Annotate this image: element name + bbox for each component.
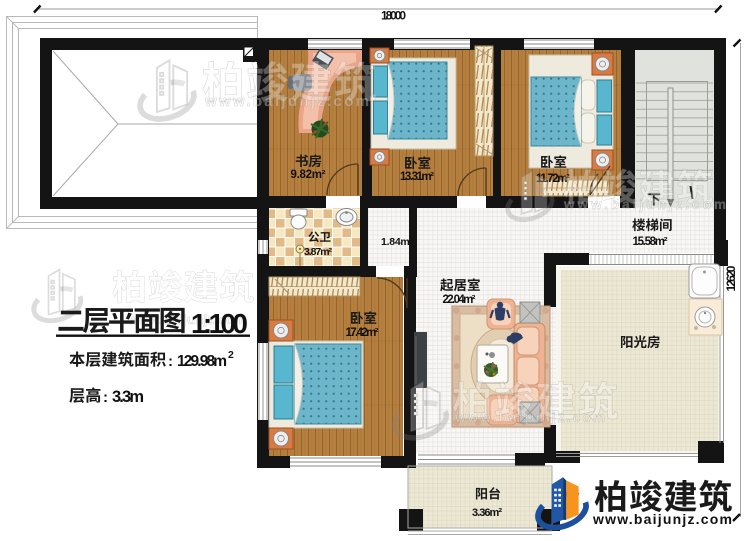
svg-text:3.3m: 3.3m — [112, 388, 144, 406]
svg-text:3.36m²: 3.36m² — [472, 507, 502, 519]
svg-text:1:100: 1:100 — [191, 308, 248, 339]
svg-text:129.98m: 129.98m — [177, 353, 227, 370]
svg-text:13.31m²: 13.31m² — [400, 171, 434, 183]
svg-text:9.82m²: 9.82m² — [291, 169, 326, 181]
svg-text:www.baijunjz.com: www.baijunjz.com — [592, 511, 732, 527]
svg-text:3.87m²: 3.87m² — [304, 246, 333, 258]
svg-text:17.42m²: 17.42m² — [346, 327, 379, 339]
svg-text:18000: 18000 — [381, 9, 406, 23]
svg-text:2: 2 — [228, 349, 234, 361]
svg-text:15.58m²: 15.58m² — [633, 236, 668, 248]
svg-text::: : — [103, 389, 108, 406]
svg-text:22.04m²: 22.04m² — [443, 294, 476, 306]
svg-text:1.84m²: 1.84m² — [381, 236, 414, 248]
svg-text::: : — [168, 353, 173, 370]
svg-text:12620: 12620 — [724, 265, 738, 291]
